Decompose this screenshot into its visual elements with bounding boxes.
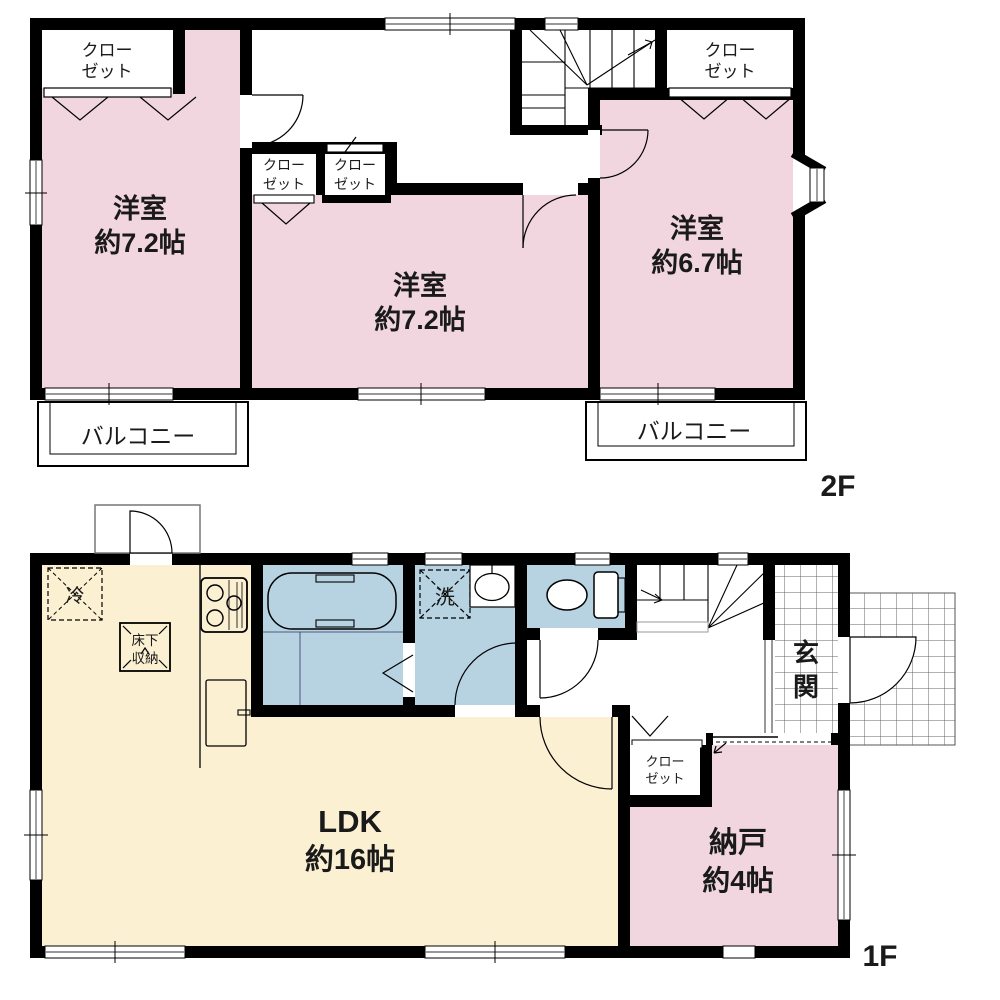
entrance-label: 玄 bbox=[793, 638, 819, 668]
room-left-label: 洋室 bbox=[113, 193, 167, 224]
room-right-label: 洋室 bbox=[670, 213, 724, 244]
door-left-room bbox=[240, 95, 303, 148]
storage-label: 納戸 bbox=[709, 825, 767, 859]
floor1-plan: 冷 床下 収納 洗 LDK 約16帖 納戸 約4帖 玄 関 クロー ゼット 1F bbox=[24, 505, 955, 973]
door-toilet bbox=[540, 628, 598, 698]
floor-plan-canvas: 洋室 約7.2帖 洋室 約7.2帖 洋室 約6.7帖 クロー ゼット クロー ゼ… bbox=[0, 0, 1000, 1000]
closet-mid-left-label2: ゼット bbox=[263, 176, 305, 192]
floor2-plan: 洋室 約7.2帖 洋室 約7.2帖 洋室 約6.7帖 クロー ゼット クロー ゼ… bbox=[25, 13, 856, 503]
closet-top-right-label: クロー bbox=[705, 41, 756, 60]
stairs-1f bbox=[637, 565, 775, 632]
entrance-step bbox=[765, 640, 772, 733]
storage-size: 約4帖 bbox=[702, 864, 774, 896]
bathroom-fill bbox=[251, 565, 403, 705]
floor1-label: 1F bbox=[862, 940, 897, 973]
washer-label: 洗 bbox=[435, 586, 455, 609]
room-right-fill bbox=[600, 100, 793, 388]
closet-top-left-label2: ゼット bbox=[82, 62, 133, 81]
underfloor-label: 床下 bbox=[132, 633, 159, 648]
balcony-left-label: バルコニー bbox=[81, 423, 196, 449]
closet-mid-right-label: クロー bbox=[334, 157, 376, 173]
room-left-size: 約7.2帖 bbox=[94, 227, 186, 258]
closet-mid-left-label: クロー bbox=[263, 157, 305, 173]
closet-top-left-label: クロー bbox=[82, 41, 133, 60]
floor-plan-drawing: 洋室 約7.2帖 洋室 約7.2帖 洋室 約6.7帖 クロー ゼット クロー ゼ… bbox=[0, 0, 1000, 1000]
refrigerator-label: 冷 bbox=[65, 585, 84, 607]
balcony-right-label: バルコニー bbox=[637, 418, 752, 444]
room-middle-label: 洋室 bbox=[393, 270, 447, 301]
entrance-label2: 関 bbox=[793, 672, 819, 702]
floor2-label: 2F bbox=[820, 470, 855, 503]
closet-1f-label: クロー bbox=[645, 754, 684, 769]
underfloor-label2: 収納 bbox=[132, 651, 159, 666]
closet-top-right-label2: ゼット bbox=[705, 62, 756, 81]
wash-basin bbox=[470, 565, 515, 607]
ldk-label: LDK bbox=[318, 804, 382, 839]
closet-mid-right-label2: ゼット bbox=[334, 176, 376, 192]
room-right-size: 約6.7帖 bbox=[651, 247, 743, 278]
closet-1f-label2: ゼット bbox=[645, 771, 684, 786]
ldk-size: 約16帖 bbox=[305, 842, 395, 876]
room-middle-size: 約7.2帖 bbox=[374, 304, 466, 335]
ldk-living-fill bbox=[251, 717, 618, 946]
